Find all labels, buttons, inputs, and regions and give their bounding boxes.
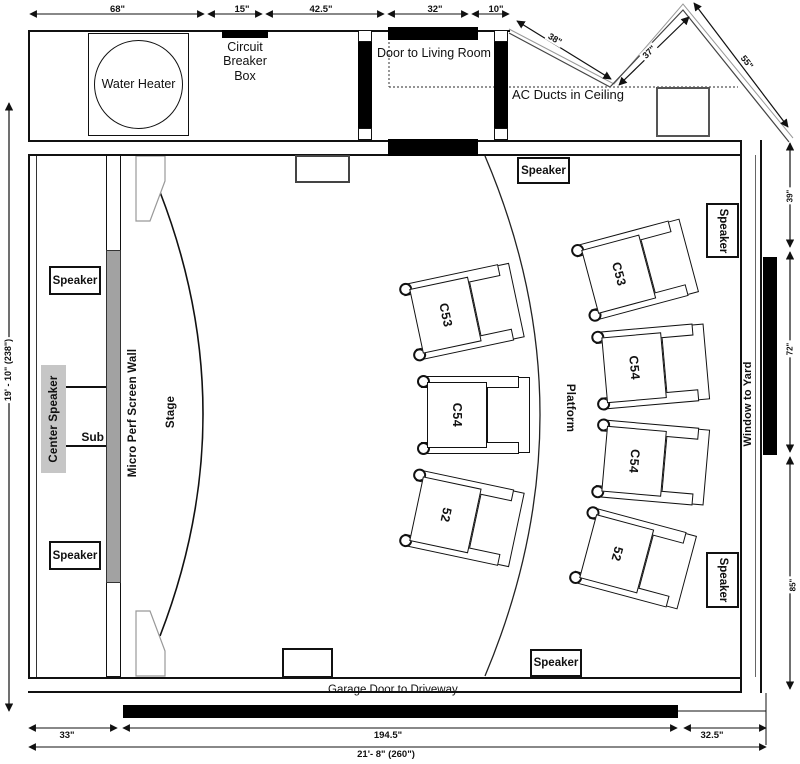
door-header-bar [388,27,478,40]
circuit-breaker-label: Circuit Breaker Box [215,40,275,83]
seat-label: C54 [626,355,642,381]
micro-perf-screen [106,250,121,583]
home-theater-floor-plan: Water Heater Circuit Breaker Box Door to… [0,0,800,764]
diagonal-wall-outer [509,4,793,138]
door-post-right [494,30,508,140]
water-heater: Water Heater [94,40,183,129]
duct-chase-box [656,87,710,137]
micro-perf-screen-wall-label: Micro Perf Screen Wall [127,349,139,478]
water-heater-label: Water Heater [102,77,176,91]
stage-wing-top [136,156,165,221]
seat-back-3: C54 [595,419,713,506]
right-wall-inner-line [755,155,756,677]
circuit-breaker-bar [222,30,268,38]
seat-label: C53 [436,302,455,329]
speaker-right-wall-lower: Speaker [706,552,739,608]
dim-bottom-194-5: 194.5" [368,730,408,741]
left-interior-wall-line [36,140,37,693]
center-speaker-label: Center Speaker [48,375,60,462]
speaker-right-wall-upper: Speaker [706,203,739,258]
seat-back-2: C54 [595,322,713,409]
garage-door-bar [123,705,678,718]
sub-label: Sub [81,430,104,444]
dim-total-width: 21'- 8" (260") [346,749,426,760]
front-wall-box [295,155,350,183]
sub-box: Sub [66,386,106,447]
dim-bottom-32-5: 32.5" [696,730,728,741]
seat-label: C53 [609,261,629,288]
door-post-left [358,30,372,140]
stage-wing-bottom [136,611,165,676]
dim-top-68: 68" [105,4,130,15]
dim-top-42-5: 42.5" [305,4,337,15]
dim-top-32: 32" [424,4,446,15]
theater-front-wall [28,140,740,156]
center-speaker-box: Center Speaker [41,365,66,473]
dim-top-15: 15" [231,4,253,15]
speaker-left-upper: Speaker [49,266,101,295]
seat-front-2: C54 [421,376,533,454]
stage-label: Stage [165,396,177,428]
platform-label: Platform [564,384,576,432]
seat-label: C54 [626,448,642,474]
dim-bottom-33: 33" [53,730,81,741]
ac-ducts-label: AC Ducts in Ceiling [512,88,632,103]
window-bar [763,257,777,455]
seat-label: C54 [450,403,464,427]
door-threshold-bar [388,139,478,156]
window-to-yard-label: Window to Yard [742,362,754,447]
rear-wall-box [282,648,333,678]
speaker-front-right: Speaker [517,157,570,184]
dim-top-10: 10" [485,4,507,15]
seat-label: 52 [437,506,454,523]
door-living-room-label: Door to Living Room [376,46,492,60]
seat-label: 52 [608,545,625,563]
left-exterior-wall [28,30,30,693]
garage-door-label: Garage Door to Driveway [328,684,468,697]
speaker-left-lower: Speaker [49,541,101,570]
speaker-rear-right: Speaker [530,649,582,677]
